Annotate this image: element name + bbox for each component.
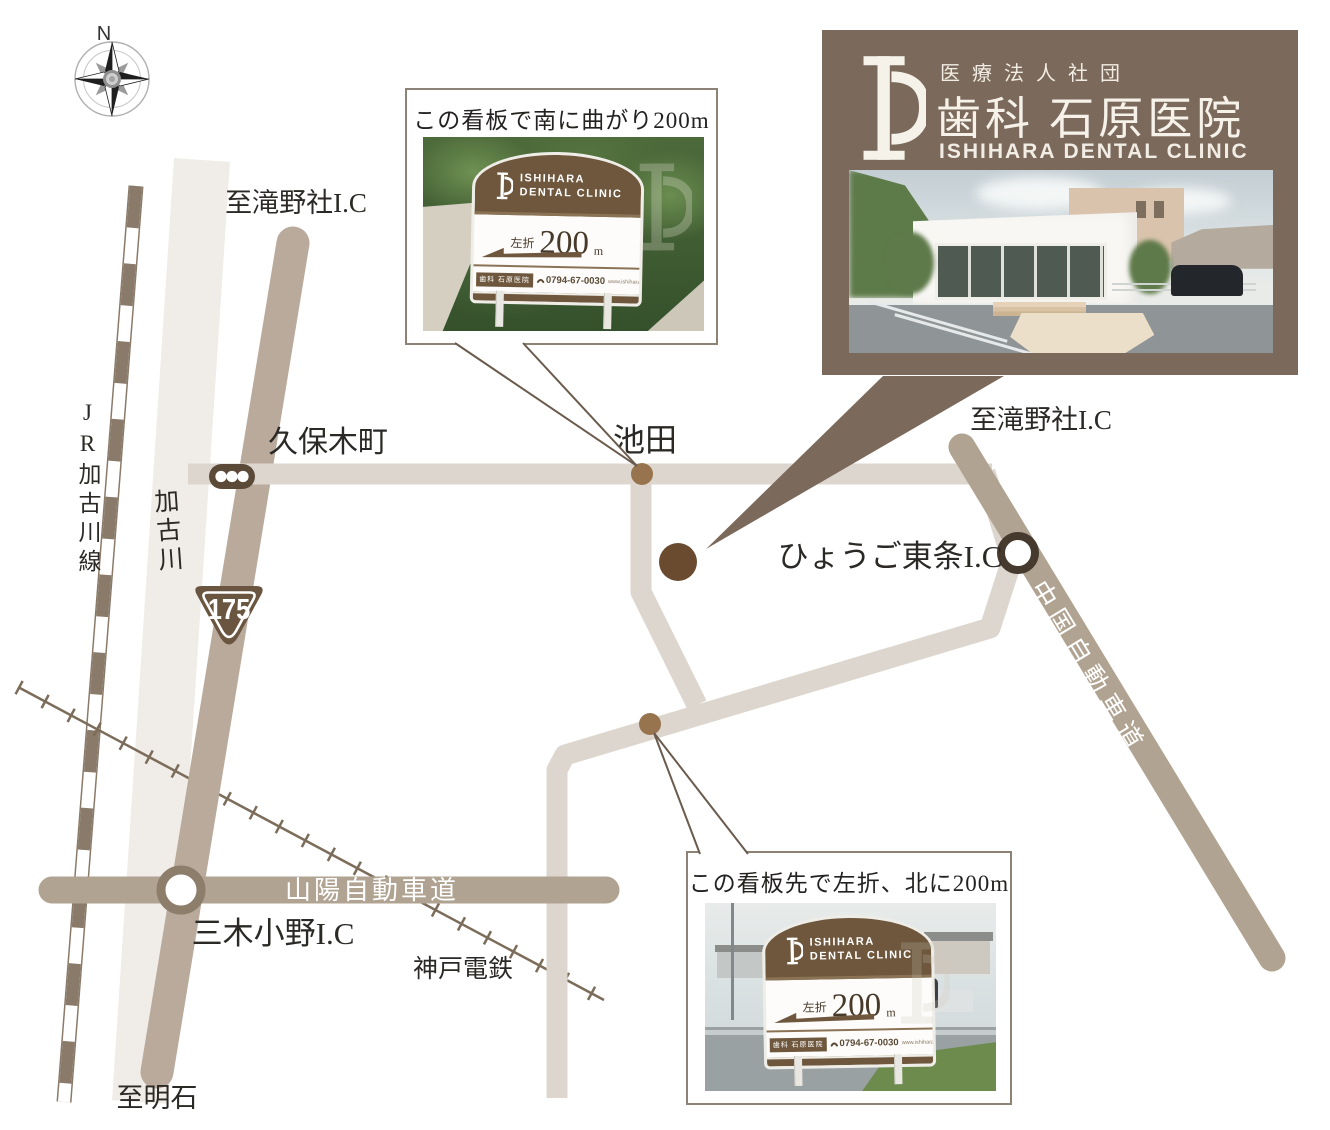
- tree: [1129, 240, 1171, 295]
- sign-brand-line2: DENTAL CLINIC: [519, 186, 622, 202]
- label-miki-ono-ic: 三木小野I.C: [192, 916, 355, 951]
- local-road-ikeda-south: [641, 474, 697, 705]
- sign-direction: 左折: [510, 234, 534, 251]
- label-to-takinosha-left: 至滝野社I.C: [225, 188, 367, 218]
- compass-rose: [75, 42, 149, 116]
- stone-patio: [1010, 313, 1154, 353]
- route-175-number: 175: [208, 592, 251, 625]
- sign-leg: [894, 1054, 903, 1084]
- compass-north-label: N: [97, 23, 111, 45]
- glass-front: [935, 243, 1107, 300]
- roadside-signboard: ISHIHARA DENTAL CLINIC 左折 200 m 歯科 石原医院 …: [469, 150, 645, 330]
- label-chugoku-expressway: 中国自動車道: [1024, 576, 1151, 760]
- sign-url: www.ishihara-dc.com: [902, 1039, 937, 1046]
- hyogo-tojo-ic-circle: [1001, 536, 1035, 570]
- label-sanyo-expressway: 山陽自動車道: [285, 876, 459, 905]
- tree: [887, 232, 934, 294]
- utility-pole: [731, 903, 734, 1020]
- sign-phone: 0794-67-0030: [839, 1037, 898, 1049]
- sign-base-strip: [767, 1055, 933, 1067]
- house: [717, 952, 764, 978]
- sign-phone: 0794-67-0030: [546, 275, 605, 287]
- sign-distance-unit: m: [594, 244, 604, 259]
- clinic-name-en: ISHIHARA DENTAL CLINIC: [939, 140, 1249, 164]
- sign-logo-icon: [783, 936, 803, 966]
- label-kuboki-cho: 久保木町: [268, 426, 388, 459]
- clinic-location-dot: [659, 543, 697, 581]
- miki-ono-ic-circle: [161, 870, 201, 910]
- neighbor-houses: [1171, 225, 1273, 269]
- callout-bottom-title: この看板先で左折、北に200m: [688, 864, 1010, 898]
- kobe-dentetsu-railway: [18, 687, 604, 1000]
- signboard-callout-south: この看板先で左折、北に200m ISHIHARA DENTAL CLINIC: [686, 851, 1012, 1105]
- sign-clinic-name: 歯科 石原医院: [770, 1037, 827, 1052]
- label-hyogo-tojo-ic: ひょうご東条I.C: [778, 539, 1003, 574]
- clinic-card: 医療法人社団 歯科 石原医院 ISHIHARA DENTAL CLINIC: [822, 30, 1298, 375]
- sign-direction: 左折: [803, 998, 827, 1015]
- label-to-akashi: 至明石: [117, 1083, 198, 1113]
- sign-leg: [495, 291, 504, 327]
- label-ikeda: 池田: [613, 422, 677, 458]
- ikeda-dot: [631, 463, 653, 485]
- label-to-takinosha-right: 至滝野社I.C: [970, 405, 1112, 435]
- sign-clinic-name: 歯科 石原医院: [476, 272, 533, 287]
- sign-url: www.ishihara-dc.com: [608, 279, 645, 286]
- clinic-building: [913, 212, 1138, 304]
- label-kakogawa-river: 加古川: [145, 487, 187, 576]
- callout-top-title: この看板で南に曲がり200m: [407, 101, 716, 135]
- clinic-logo-icon: [852, 54, 926, 162]
- signboard-callout-north: この看板で南に曲がり200m ISHIHARA DENTAL CLINIC 左折: [405, 88, 718, 345]
- sign-logo-icon: [493, 171, 513, 201]
- phone-icon: [829, 1039, 838, 1048]
- watermark-logo-icon: [892, 939, 950, 1027]
- sign-leg: [794, 1056, 803, 1086]
- label-kobe-dentetsu: 神戸電鉄: [413, 955, 513, 983]
- clinic-name: 歯科 石原医院: [936, 82, 1245, 147]
- clinic-building-photo: [849, 170, 1273, 353]
- parking-line: [868, 300, 1007, 343]
- route-175-shield: 175: [195, 586, 262, 645]
- parked-car: [1171, 265, 1243, 296]
- traffic-signal-icon: [209, 464, 255, 489]
- label-jr-kakogawa-line: JR加古川線: [70, 400, 104, 578]
- watermark-logo-icon: [630, 161, 692, 253]
- signboard-photo-north: ISHIHARA DENTAL CLINIC 左折 200 m 歯科 石原医院 …: [423, 137, 704, 331]
- sign-leg: [603, 293, 612, 329]
- turn-point-dot: [639, 713, 661, 735]
- phone-icon: [536, 276, 545, 285]
- signboard-photo-south: ISHIHARA DENTAL CLINIC 左折 200 m 歯科 石原医院 …: [705, 903, 996, 1091]
- access-map: 山陽自動車道 中国自動車道 175: [0, 0, 1330, 1130]
